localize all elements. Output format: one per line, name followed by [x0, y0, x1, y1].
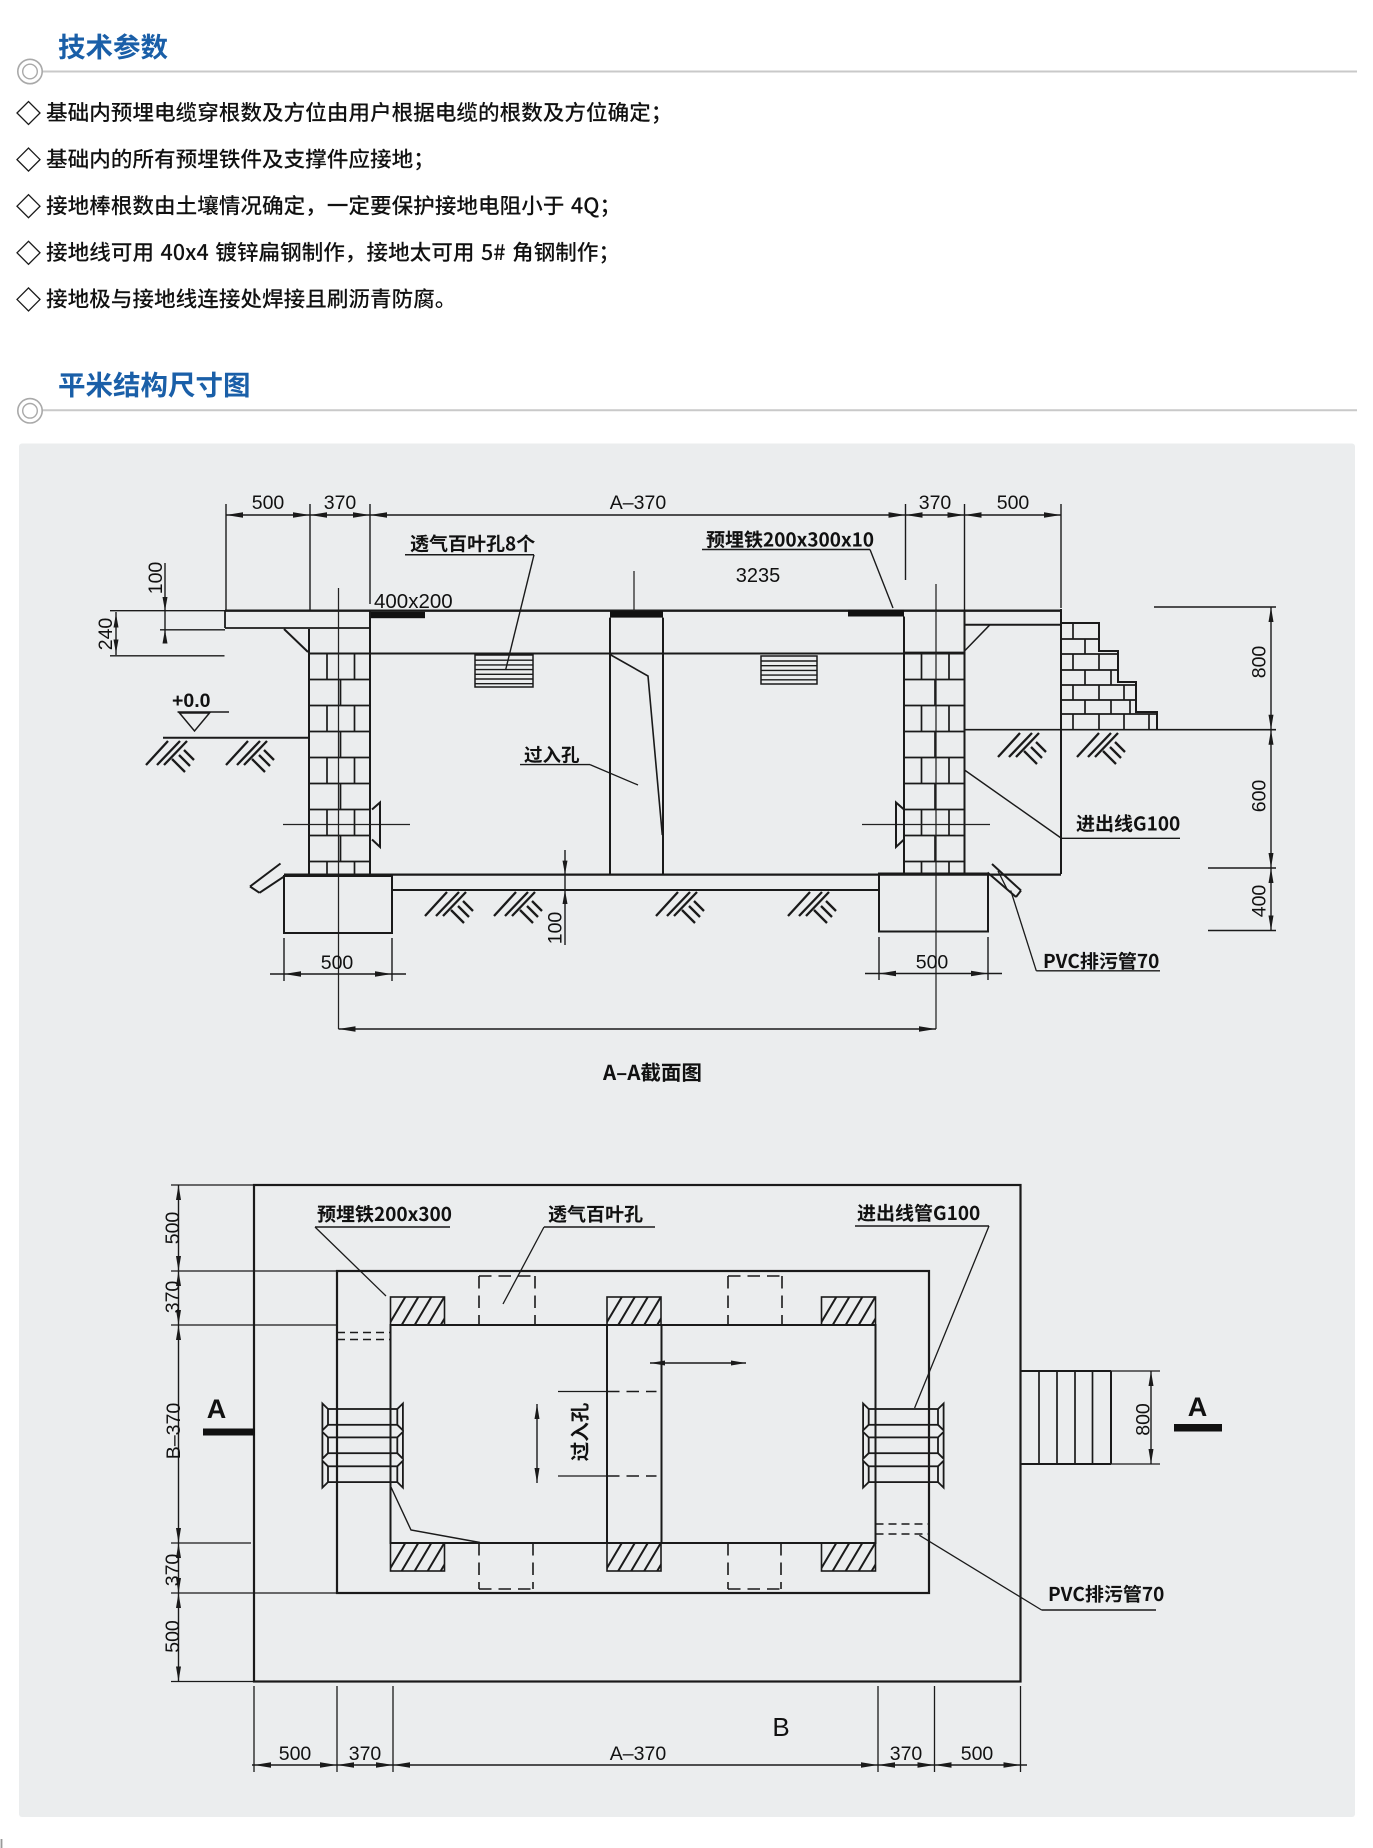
svg-text:370: 370	[349, 1743, 382, 1765]
svg-text:B–370: B–370	[163, 1403, 185, 1460]
svg-text:800: 800	[1249, 646, 1271, 679]
svg-text:370: 370	[324, 492, 357, 514]
svg-text:A: A	[207, 1394, 227, 1424]
svg-text:A–370: A–370	[610, 492, 667, 514]
svg-text:B: B	[772, 1712, 789, 1742]
svg-text:400: 400	[1249, 885, 1271, 918]
svg-text:240: 240	[95, 618, 117, 651]
svg-text:100: 100	[145, 562, 167, 595]
svg-text:800: 800	[1133, 1403, 1155, 1436]
svg-text:370: 370	[162, 1554, 184, 1587]
svg-text:500: 500	[321, 952, 354, 974]
svg-text:370: 370	[162, 1281, 184, 1314]
svg-text:500: 500	[252, 492, 285, 514]
svg-text:500: 500	[997, 492, 1030, 514]
svg-text:500: 500	[162, 1212, 184, 1245]
svg-text:500: 500	[279, 1743, 312, 1765]
svg-text:+0.0: +0.0	[172, 690, 211, 712]
svg-text:400x200: 400x200	[374, 590, 453, 613]
svg-text:500: 500	[162, 1620, 184, 1653]
svg-text:500: 500	[916, 952, 949, 974]
svg-text:600: 600	[1249, 780, 1271, 813]
svg-text:100: 100	[545, 912, 567, 945]
svg-text:370: 370	[890, 1743, 923, 1765]
svg-text:3235: 3235	[736, 565, 781, 587]
svg-text:500: 500	[961, 1743, 994, 1765]
svg-text:A–370: A–370	[610, 1743, 667, 1765]
svg-text:370: 370	[919, 492, 952, 514]
svg-text:A: A	[1188, 1392, 1208, 1422]
